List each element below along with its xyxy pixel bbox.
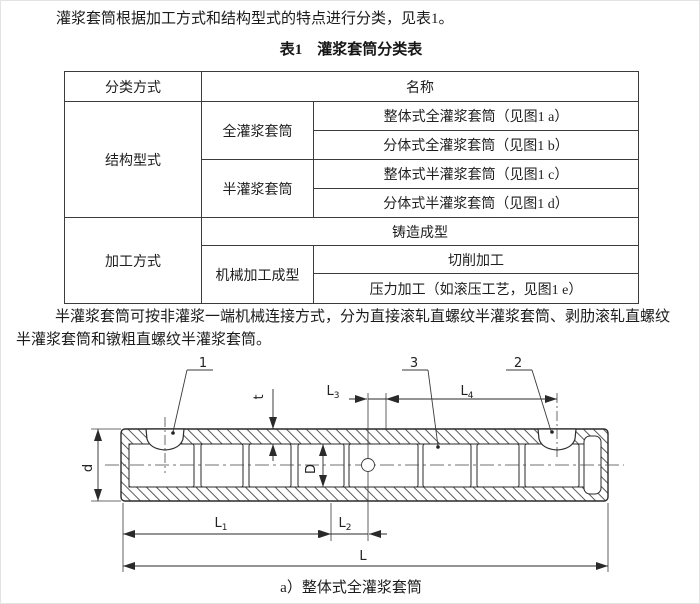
cell-full-integral: 整体式全灌浆套筒（见图1 a）	[314, 102, 639, 131]
header-classification: 分类方式	[65, 72, 202, 102]
part-label-grout-inlet: 1	[171, 356, 213, 435]
cell-half-split: 分体式半灌浆套筒（见图1 d）	[314, 189, 639, 218]
classification-table: 分类方式 名称 结构型式 全灌浆套筒 整体式全灌浆套筒（见图1 a） 分体式全灌…	[64, 71, 639, 304]
part-number-2: 2	[514, 356, 522, 371]
paragraph-line-2: 半灌浆套筒和镦粗直螺纹半灌浆套筒。	[16, 329, 688, 352]
paragraph-line-1: 半灌浆套筒可按非灌浆一端机械连接方式，分为直接滚轧直螺纹半灌浆套筒、剥肋滚轧直螺…	[16, 306, 688, 329]
cell-half-grout-sleeve: 半灌浆套筒	[202, 160, 314, 218]
part-label-grout-outlet: 2	[506, 356, 554, 434]
dim-label-L: L	[359, 549, 367, 564]
cell-half-integral: 整体式半灌浆套筒（见图1 c）	[314, 160, 639, 189]
header-name: 名称	[202, 72, 639, 102]
dimension-L2: L2	[313, 516, 387, 534]
intro-paragraph: 灌浆套筒根据加工方式和结构型式的特点进行分类，见表1。	[17, 7, 687, 31]
table-title: 表1 灌浆套筒分类表	[1, 38, 700, 59]
dimension-total-length: L	[123, 549, 608, 566]
dim-label-L3: L3	[327, 384, 340, 401]
cell-process-type: 加工方式	[65, 218, 202, 304]
dimension-L3: L3	[327, 384, 405, 401]
part-number-3: 3	[410, 356, 418, 371]
cell-full-grout-sleeve: 全灌浆套筒	[202, 102, 314, 160]
body-paragraph: 半灌浆套筒可按非灌浆一端机械连接方式，分为直接滚轧直螺纹半灌浆套筒、剥肋滚轧直螺…	[16, 306, 688, 352]
figure-drawing: d t D L3 L4	[1, 353, 700, 603]
dim-label-L4: L4	[461, 384, 474, 401]
cell-casting: 铸造成型	[202, 218, 639, 246]
dimension-L1: L1	[123, 516, 331, 534]
document-page: 灌浆套筒根据加工方式和结构型式的特点进行分类，见表1。 表1 灌浆套筒分类表 分…	[0, 0, 700, 604]
dim-label-d: d	[81, 464, 96, 472]
cell-structure-type: 结构型式	[65, 102, 202, 218]
cell-pressing: 压力加工（如滚压工艺，见图1 e）	[314, 274, 639, 304]
dim-label-L2: L2	[339, 516, 352, 533]
dim-label-L1: L1	[215, 516, 228, 533]
dimension-outer-diameter: d	[81, 429, 98, 501]
cell-machining: 机械加工成型	[202, 246, 314, 304]
center-hole	[362, 459, 375, 472]
dim-label-t: t	[252, 394, 267, 399]
dimension-L4: L4	[386, 384, 557, 401]
cell-cutting: 切削加工	[314, 246, 639, 274]
figure-caption: a）整体式全灌浆套筒	[1, 576, 700, 597]
dim-label-D: D	[304, 464, 319, 474]
cell-full-split: 分体式全灌浆套筒（见图1 b）	[314, 131, 639, 160]
part-number-1: 1	[199, 356, 207, 371]
